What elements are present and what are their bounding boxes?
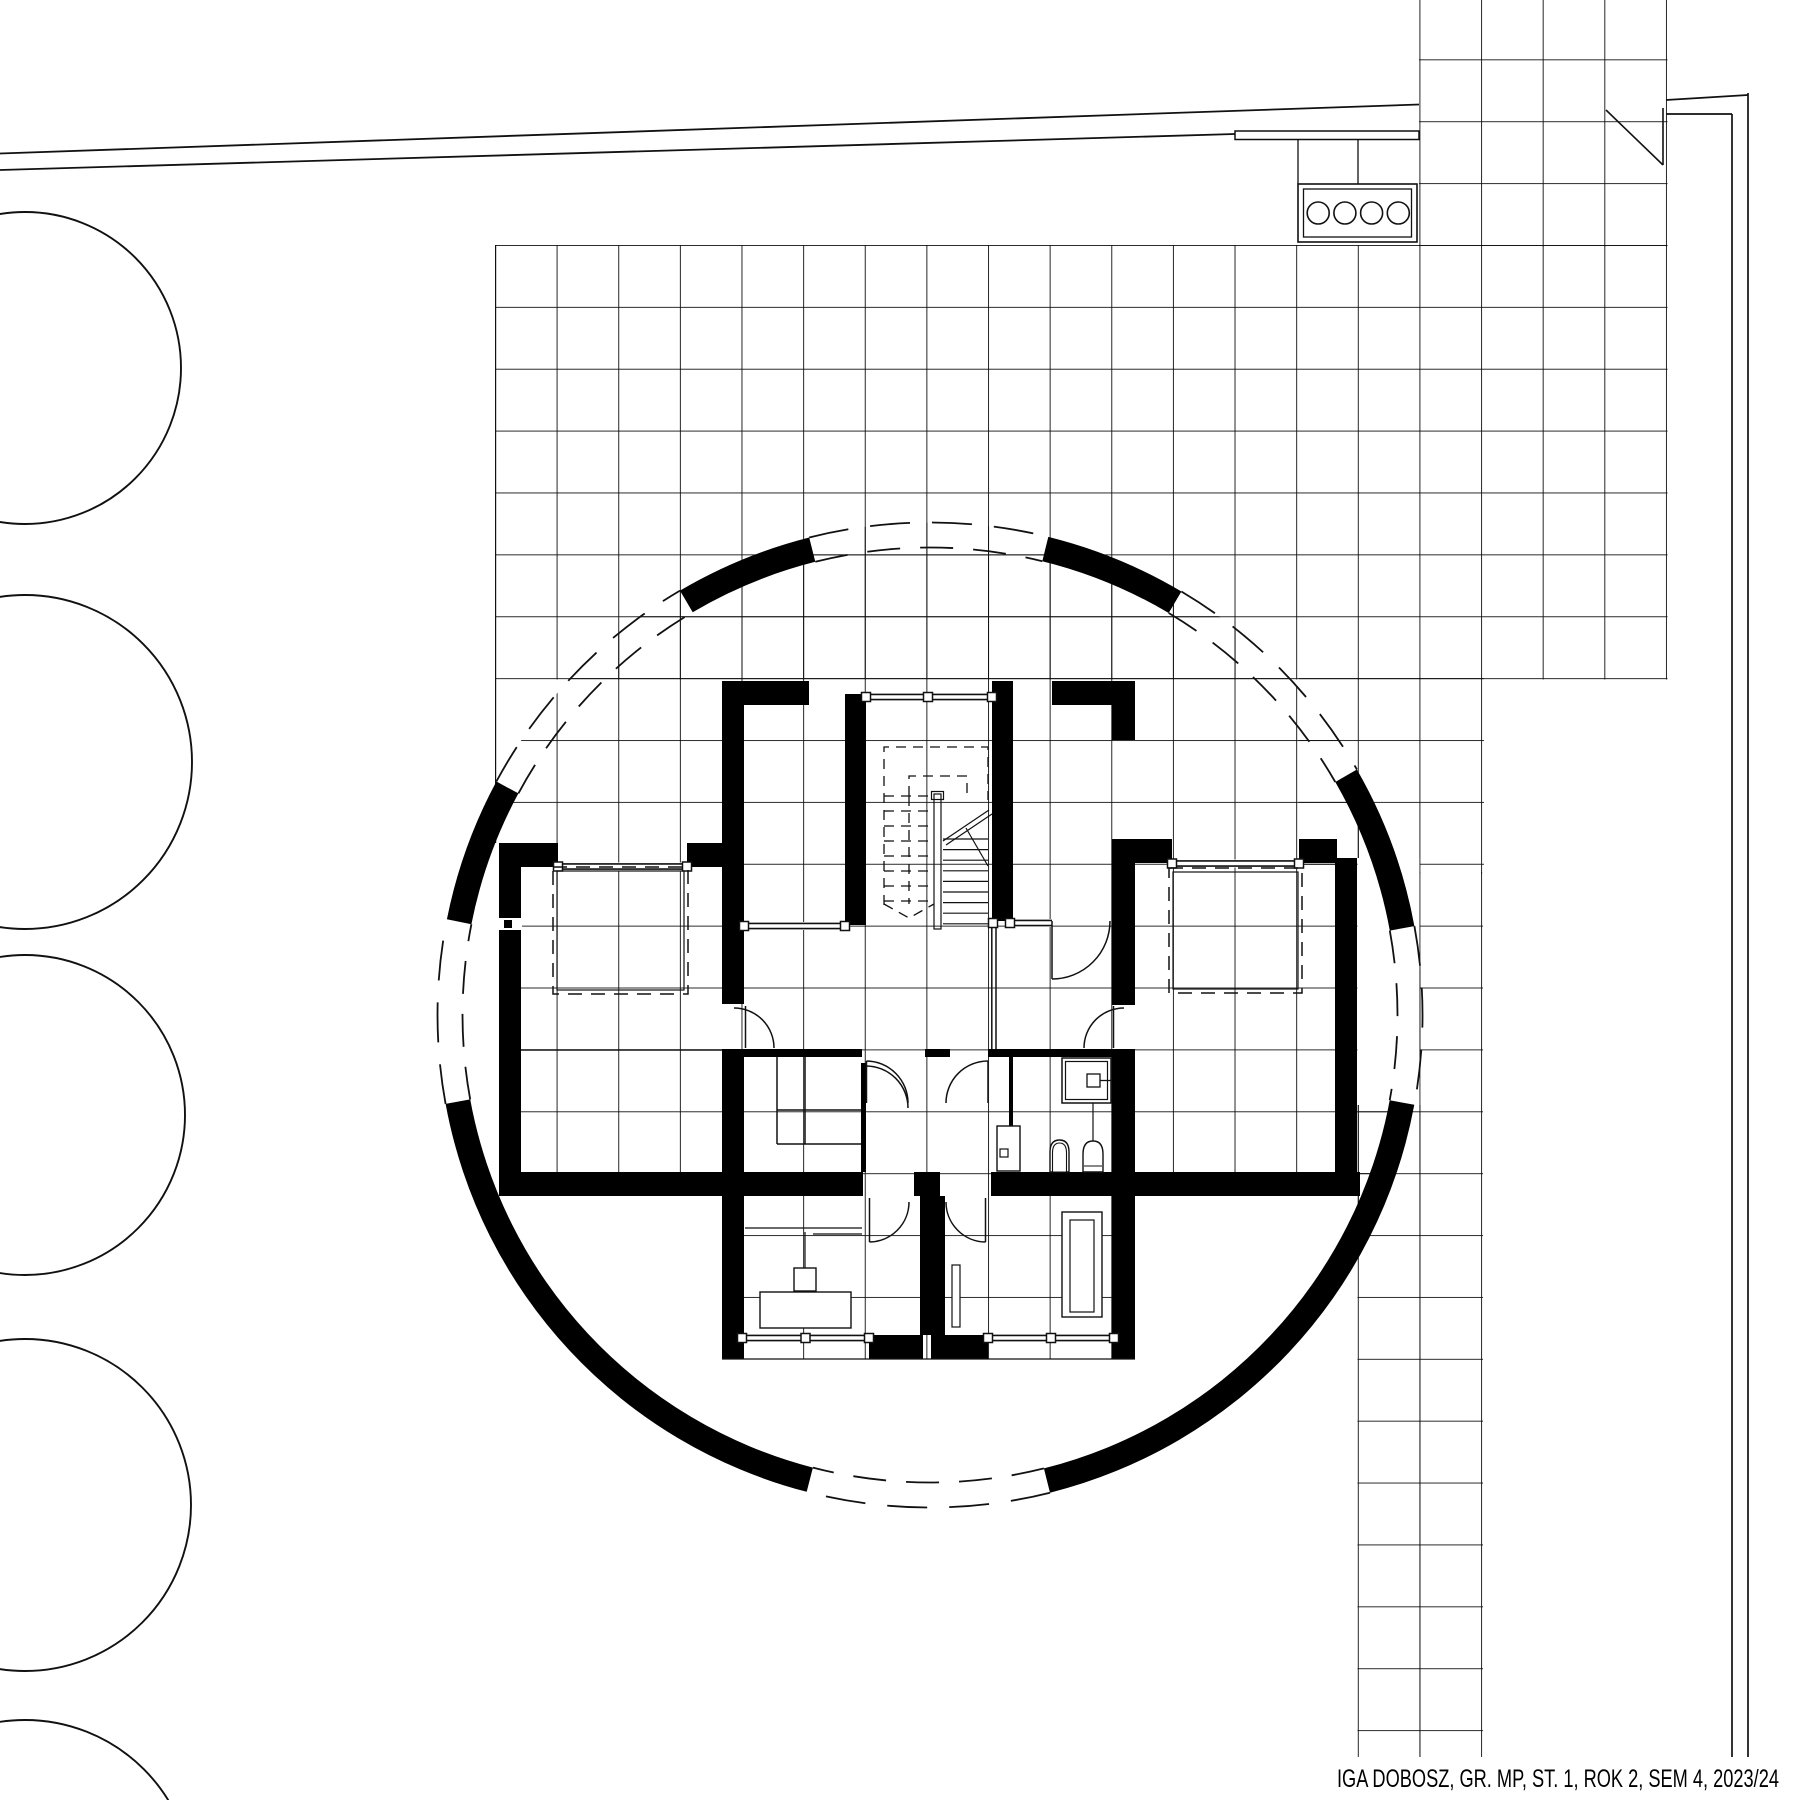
svg-text:IGA DOBOSZ, GR. MP, ST. 1, ROK: IGA DOBOSZ, GR. MP, ST. 1, ROK 2, SEM 4,… [1337,1765,1779,1793]
